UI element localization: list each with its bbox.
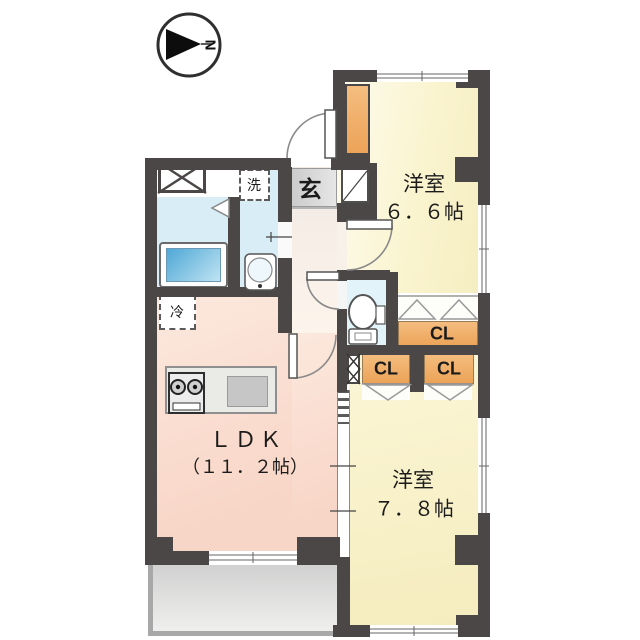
shoe-cabinet [341,168,369,203]
pillar-66-east [455,157,478,182]
kitchen-sink [227,376,268,407]
fridge-label: 冷 [170,302,184,322]
window-66-north [377,70,468,82]
compass-circle [158,14,220,76]
closet-78r-label: CL [437,359,461,380]
doorway-washroom [278,222,292,258]
bathtub [166,248,221,282]
wall-below-shoe [337,203,377,222]
room-78-size: ７．８帖 [374,493,454,522]
wall-toilet-east [386,272,398,355]
ldk-name: ＬＤＫ [209,422,284,454]
wall-bath-wash [228,197,240,290]
genkan-label: 玄 [299,170,322,204]
wall-toilet-north [337,270,390,280]
room-66-size: ６．６帖 [384,196,464,225]
wall-east [478,70,490,637]
room-78-name: 洋室 [392,464,434,494]
wall-corner-se [456,615,478,627]
entry-door-arc [287,113,331,158]
wall-ldk-south-left [157,551,209,565]
doorway-66 [337,222,347,270]
floor-plan: N [0,0,640,640]
closet-66-label: CL [430,324,454,345]
genkan-step [292,207,337,209]
wall-66-west-upper [333,82,345,157]
pillar-78-east [455,535,478,565]
closet-78l-label: CL [374,359,398,380]
compass-north-label: N [202,40,219,51]
balcony [148,556,346,636]
window-78-east [478,418,490,513]
wall-cl-divider [410,345,424,392]
wall-ldk-south-right [297,537,340,565]
wall-ldk78-upper [337,345,347,392]
wall-corner-ne [456,82,478,88]
closet-78l-front [362,384,410,400]
window-ldk-balcony [209,551,297,565]
wall-bath-south [151,287,283,297]
sliding-partition [337,390,350,557]
window-78-south [370,625,458,637]
ldk-floor-east [292,333,337,552]
wall-shoe-east [369,163,377,207]
compass: N [158,14,220,76]
wall-west [145,158,157,565]
closet-66-front [398,296,478,321]
closet-strip-66 [345,84,370,155]
compass-needle-icon [166,29,201,60]
partition-pocket [338,390,349,424]
room-66-name: 洋室 [403,168,445,198]
toilet-floor [347,280,386,345]
pipe-space-box [347,354,360,384]
ldk-size: （１１．２帖） [182,453,308,479]
doorway-toilet [337,281,347,309]
wall-top-left [145,158,291,170]
laundry-label: 洗 [247,175,261,195]
closet-78r-front [424,384,472,400]
window-66-east [478,205,490,293]
